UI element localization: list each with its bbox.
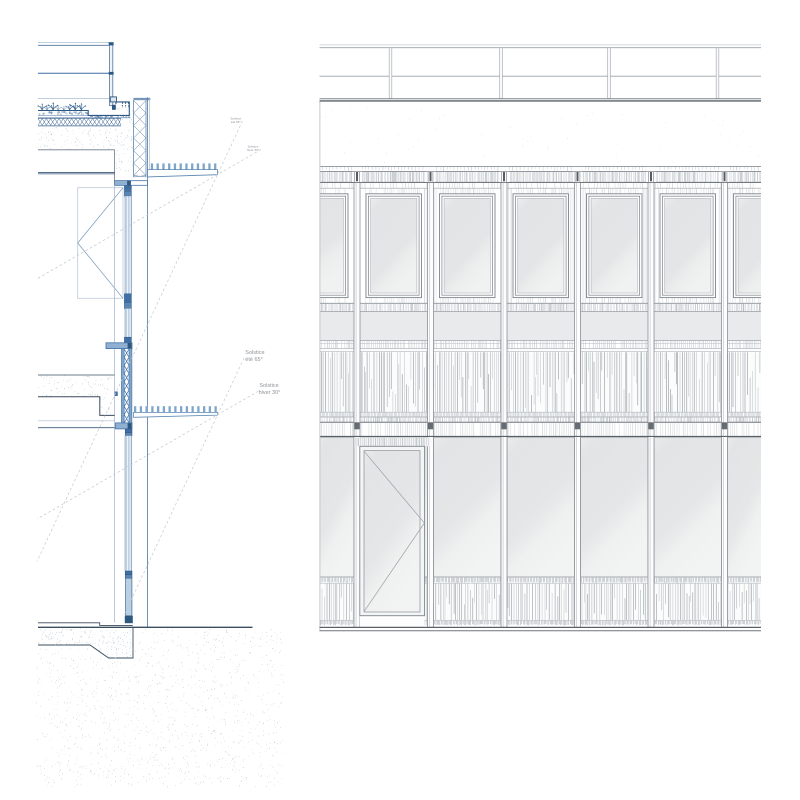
svg-text:été 65°: été 65° (245, 357, 262, 363)
svg-text:Solstice: Solstice (259, 383, 278, 389)
svg-text:hiver 30°: hiver 30° (247, 148, 260, 152)
svg-text:hiver 30°: hiver 30° (259, 390, 281, 396)
svg-text:été 65°: été 65° (231, 120, 242, 124)
svg-text:Solstice: Solstice (245, 350, 264, 356)
